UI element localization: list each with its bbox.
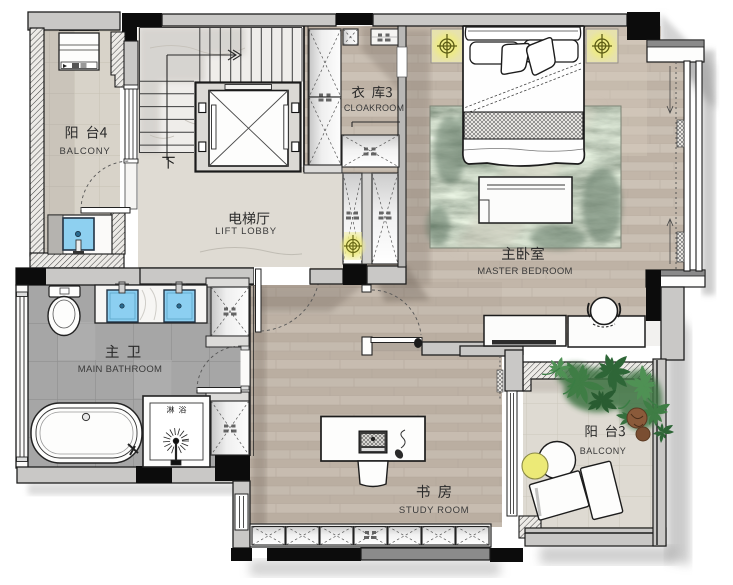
svg-text:MASTER BEDROOM: MASTER BEDROOM xyxy=(477,266,573,277)
svg-text:CLOAKROOM: CLOAKROOM xyxy=(344,103,404,113)
svg-text:MAIN BATHROOM: MAIN BATHROOM xyxy=(78,364,162,375)
svg-text:BALCONY: BALCONY xyxy=(59,146,110,157)
svg-text:LIFT LOBBY: LIFT LOBBY xyxy=(215,226,277,237)
svg-text:BALCONY: BALCONY xyxy=(580,446,627,456)
svg-text:STUDY ROOM: STUDY ROOM xyxy=(399,505,469,516)
